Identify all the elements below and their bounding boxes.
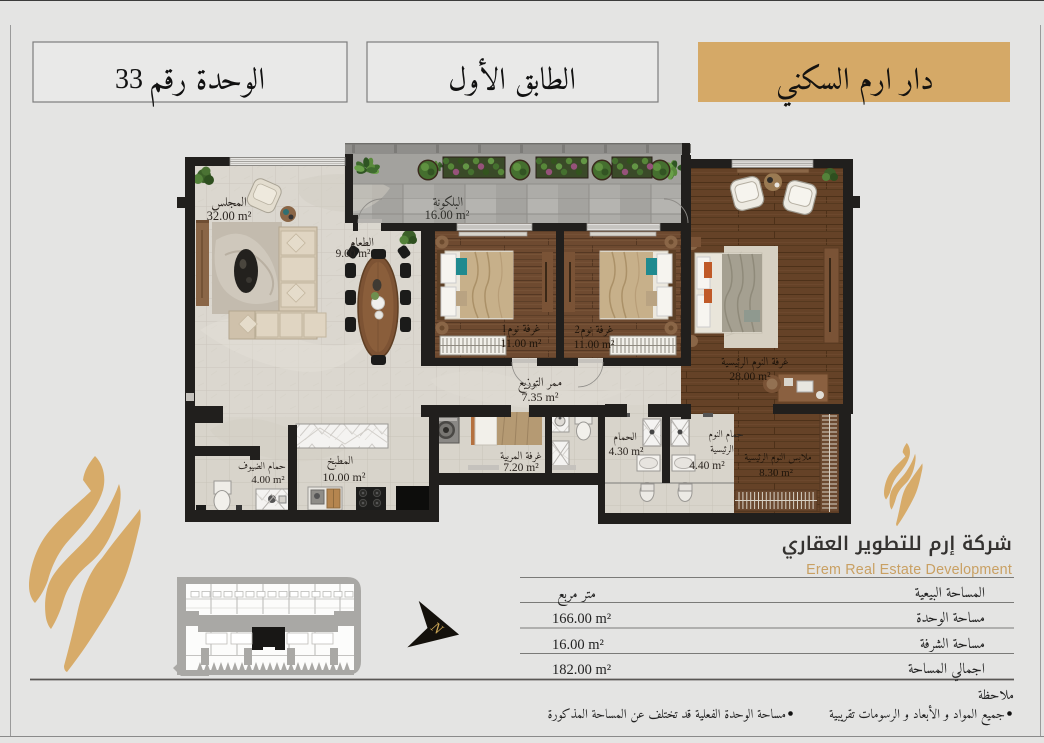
svg-text:11.00 m²: 11.00 m² [574, 339, 615, 351]
svg-text:8.30 m²: 8.30 m² [759, 467, 794, 479]
svg-text:28.00 m²: 28.00 m² [729, 371, 771, 383]
svg-text:11.00 m²: 11.00 m² [501, 338, 542, 350]
svg-text:4.30 m²: 4.30 m² [609, 446, 644, 458]
svg-text:10.00 m²: 10.00 m² [323, 470, 366, 484]
svg-text:166.00 m²: 166.00 m² [552, 611, 612, 627]
svg-text:16.00 m²: 16.00 m² [552, 637, 605, 653]
svg-text:4.40 m²: 4.40 m² [689, 460, 725, 472]
svg-text:33: 33 [115, 64, 143, 95]
svg-text:7.35 m²: 7.35 m² [522, 390, 559, 404]
svg-text:16.00 m²: 16.00 m² [425, 208, 470, 222]
svg-text:7.20 m²: 7.20 m² [503, 462, 539, 474]
svg-text:Erem Real Estate Development: Erem Real Estate Development [806, 562, 1012, 578]
svg-text:9.00 m²: 9.00 m² [336, 248, 371, 260]
svg-text:4.00 m²: 4.00 m² [251, 474, 284, 486]
svg-text:32.00 m²: 32.00 m² [207, 209, 252, 223]
svg-text:182.00 m²: 182.00 m² [552, 662, 612, 678]
